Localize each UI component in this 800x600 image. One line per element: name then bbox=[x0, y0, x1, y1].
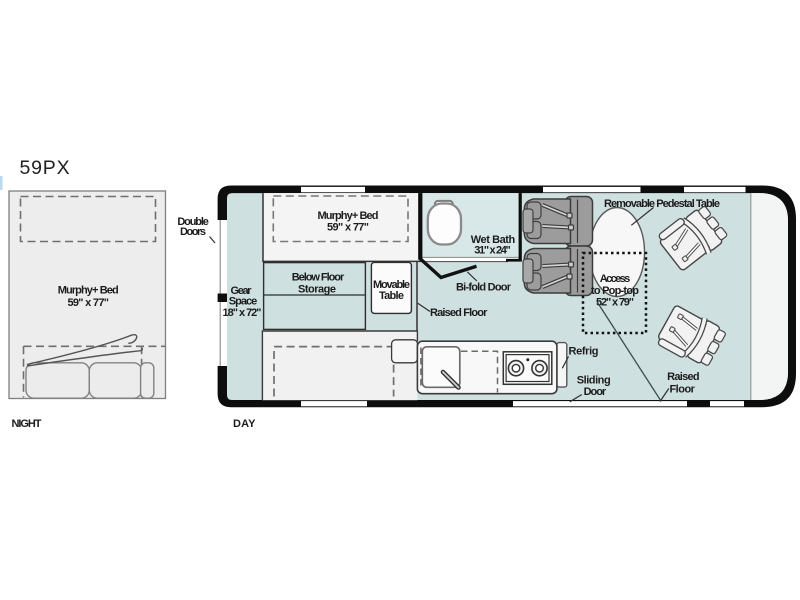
svg-text:Storage: Storage bbox=[298, 283, 336, 295]
svg-text:Murphy+ Bed: Murphy+ Bed bbox=[58, 285, 119, 297]
svg-text:59" x 77": 59" x 77" bbox=[67, 297, 109, 309]
svg-text:to Pop-top: to Pop-top bbox=[591, 285, 639, 297]
svg-text:Table: Table bbox=[379, 290, 404, 302]
svg-text:Sliding: Sliding bbox=[577, 375, 611, 387]
svg-text:52" x 79": 52" x 79" bbox=[596, 297, 634, 309]
svg-text:Below Floor: Below Floor bbox=[292, 272, 345, 284]
svg-text:Murphy+ Bed: Murphy+ Bed bbox=[318, 210, 379, 222]
svg-text:Refrig: Refrig bbox=[569, 345, 599, 357]
svg-text:Access: Access bbox=[600, 273, 631, 285]
svg-text:Raised: Raised bbox=[667, 371, 700, 383]
svg-text:Raised Floor: Raised Floor bbox=[430, 307, 488, 319]
svg-text:Doors: Doors bbox=[180, 226, 206, 238]
svg-text:Floor: Floor bbox=[669, 384, 695, 396]
svg-text:59PX: 59PX bbox=[20, 157, 71, 179]
svg-text:Space: Space bbox=[229, 295, 258, 307]
svg-text:NIGHT: NIGHT bbox=[12, 418, 42, 430]
svg-text:18" x 72": 18" x 72" bbox=[223, 307, 262, 319]
svg-text:Door: Door bbox=[584, 386, 607, 398]
svg-text:DAY: DAY bbox=[233, 418, 256, 430]
svg-text:59" x 77": 59" x 77" bbox=[327, 222, 369, 234]
svg-text:31" x 24": 31" x 24" bbox=[474, 244, 511, 256]
svg-text:Bi-fold Door: Bi-fold Door bbox=[456, 281, 512, 293]
